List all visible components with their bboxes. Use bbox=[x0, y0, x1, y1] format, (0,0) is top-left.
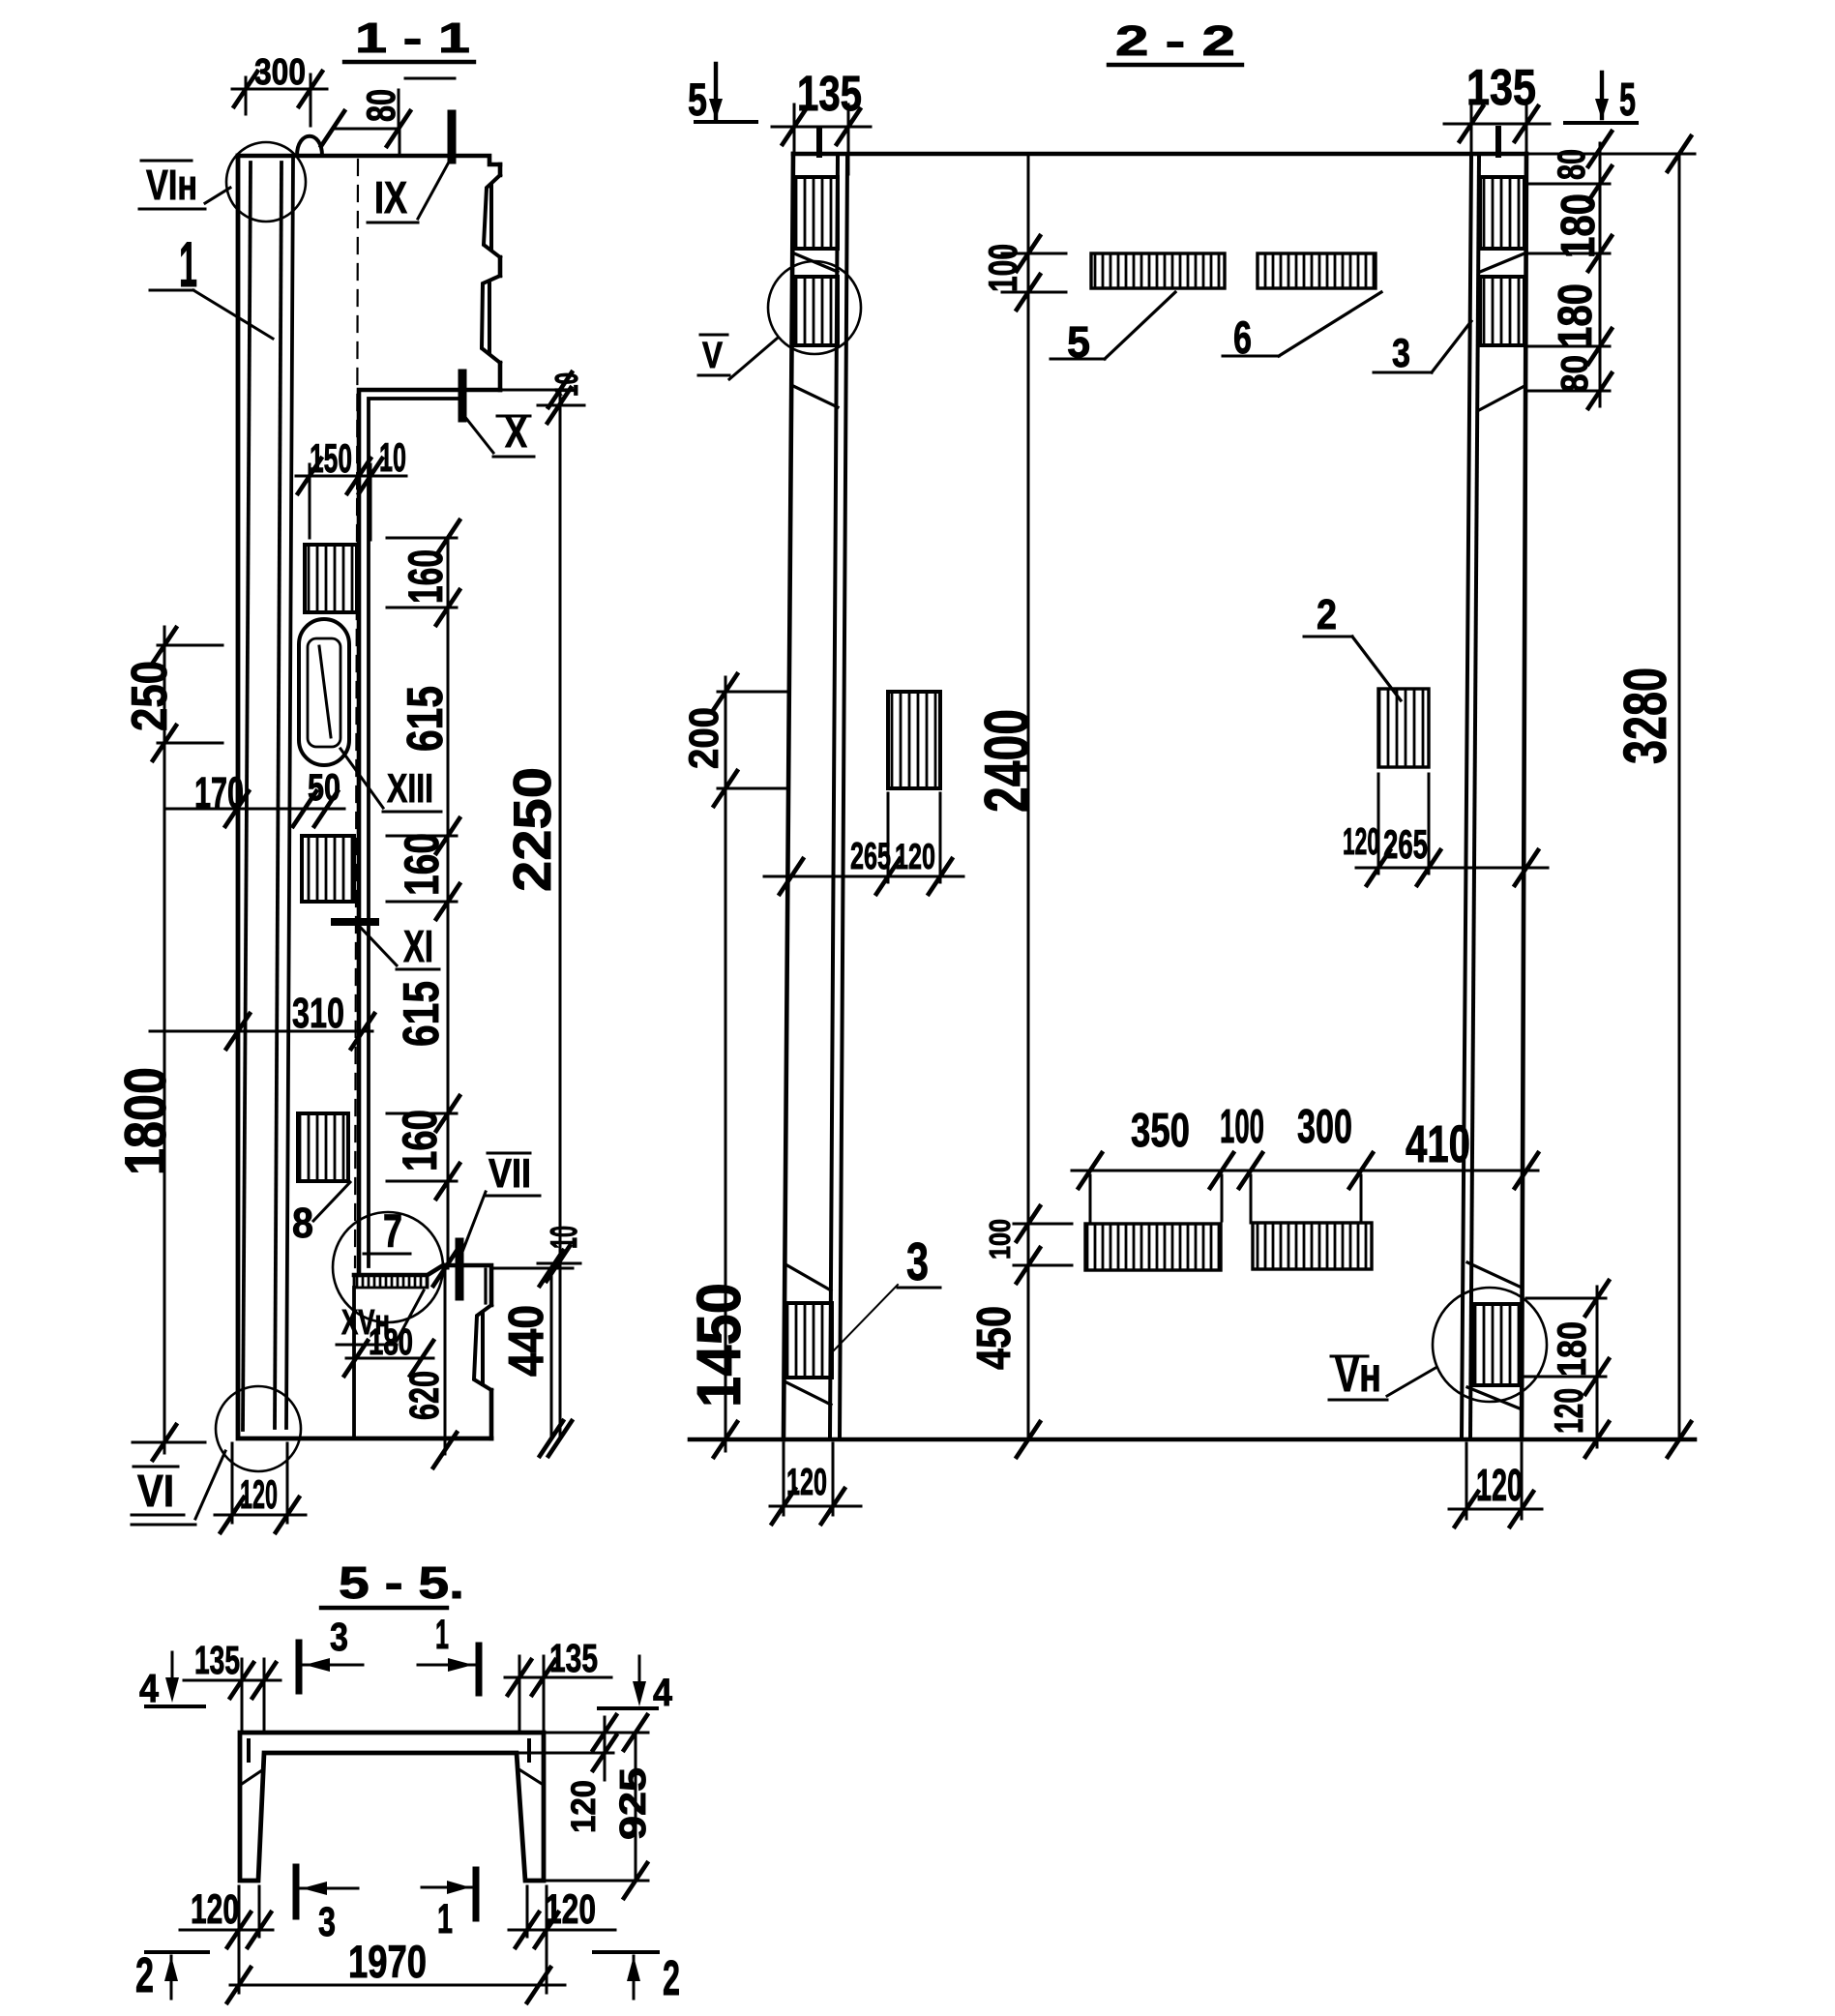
svg-text:310: 310 bbox=[292, 990, 344, 1037]
svg-text:170: 170 bbox=[194, 768, 244, 817]
svg-text:180: 180 bbox=[1549, 1321, 1594, 1377]
svg-text:2: 2 bbox=[135, 1947, 154, 2002]
svg-text:100: 100 bbox=[1220, 1101, 1264, 1153]
svg-text:100: 100 bbox=[980, 244, 1025, 292]
svg-text:1450: 1450 bbox=[684, 1283, 754, 1408]
svg-text:265: 265 bbox=[1383, 821, 1428, 867]
svg-text:3280: 3280 bbox=[1613, 667, 1679, 764]
svg-text:160: 160 bbox=[393, 1110, 447, 1171]
svg-text:160: 160 bbox=[395, 833, 449, 896]
svg-text:265: 265 bbox=[850, 836, 891, 877]
svg-text:180: 180 bbox=[1550, 283, 1602, 348]
svg-text:3: 3 bbox=[906, 1231, 929, 1291]
svg-text:410: 410 bbox=[1406, 1115, 1470, 1173]
svg-text:440: 440 bbox=[498, 1305, 553, 1377]
svg-text:925: 925 bbox=[613, 1767, 654, 1840]
svg-text:50: 50 bbox=[308, 767, 340, 809]
svg-text:135: 135 bbox=[194, 1638, 240, 1682]
svg-text:350: 350 bbox=[1131, 1105, 1190, 1157]
svg-text:XI: XI bbox=[403, 921, 433, 971]
svg-text:5: 5 bbox=[688, 74, 707, 125]
svg-text:XIII: XIII bbox=[387, 765, 433, 811]
svg-text:615: 615 bbox=[398, 686, 454, 752]
svg-text:VI: VI bbox=[137, 1466, 174, 1516]
svg-text:10: 10 bbox=[379, 434, 406, 480]
svg-text:5: 5 bbox=[1619, 74, 1636, 126]
svg-text:120: 120 bbox=[786, 1462, 827, 1503]
svg-text:180: 180 bbox=[1553, 193, 1605, 258]
svg-text:450: 450 bbox=[968, 1306, 1021, 1370]
svg-text:120: 120 bbox=[1343, 821, 1379, 863]
svg-text:8: 8 bbox=[292, 1200, 313, 1247]
svg-text:120: 120 bbox=[191, 1886, 239, 1933]
svg-text:2: 2 bbox=[663, 1950, 680, 2005]
svg-text:VIн: VIн bbox=[146, 162, 197, 209]
svg-text:615: 615 bbox=[394, 981, 450, 1047]
svg-text:300: 300 bbox=[254, 52, 306, 93]
svg-text:4: 4 bbox=[139, 1666, 159, 1710]
svg-text:2 - 2: 2 - 2 bbox=[1115, 17, 1235, 65]
svg-text:200: 200 bbox=[681, 707, 727, 769]
svg-text:10: 10 bbox=[548, 372, 584, 397]
svg-text:3: 3 bbox=[1392, 330, 1410, 375]
svg-text:150: 150 bbox=[310, 435, 352, 481]
svg-text:120: 120 bbox=[240, 1471, 278, 1517]
svg-text:7: 7 bbox=[383, 1206, 402, 1258]
svg-text:5 - 5.: 5 - 5. bbox=[339, 1557, 464, 1608]
svg-text:2400: 2400 bbox=[971, 709, 1042, 813]
svg-text:80: 80 bbox=[1554, 355, 1596, 393]
svg-text:1: 1 bbox=[437, 1896, 453, 1942]
svg-text:10: 10 bbox=[544, 1226, 585, 1249]
svg-text:3: 3 bbox=[318, 1899, 336, 1945]
svg-text:1800: 1800 bbox=[113, 1067, 178, 1175]
svg-text:1: 1 bbox=[435, 1612, 449, 1658]
svg-text:620: 620 bbox=[401, 1371, 448, 1420]
svg-text:180: 180 bbox=[369, 1322, 413, 1363]
svg-text:160: 160 bbox=[399, 549, 453, 604]
svg-text:120: 120 bbox=[1476, 1460, 1523, 1510]
svg-text:2250: 2250 bbox=[502, 767, 562, 892]
svg-text:300: 300 bbox=[1297, 1101, 1352, 1153]
svg-text:V: V bbox=[702, 336, 724, 376]
svg-text:VII: VII bbox=[488, 1150, 531, 1196]
svg-text:2: 2 bbox=[1317, 591, 1337, 638]
svg-text:80: 80 bbox=[358, 89, 403, 122]
svg-text:1 - 1: 1 - 1 bbox=[355, 15, 470, 62]
svg-text:120: 120 bbox=[565, 1780, 603, 1833]
svg-text:135: 135 bbox=[549, 1636, 598, 1680]
svg-text:1970: 1970 bbox=[348, 1936, 427, 1987]
svg-text:3: 3 bbox=[330, 1615, 348, 1659]
svg-text:135: 135 bbox=[797, 66, 862, 121]
svg-text:100: 100 bbox=[983, 1219, 1017, 1260]
svg-text:120: 120 bbox=[895, 837, 935, 876]
svg-text:120: 120 bbox=[1546, 1388, 1591, 1434]
svg-text:250: 250 bbox=[122, 661, 178, 731]
svg-text:135: 135 bbox=[1466, 60, 1536, 116]
svg-text:IX: IX bbox=[374, 172, 407, 222]
svg-text:120: 120 bbox=[545, 1886, 596, 1933]
